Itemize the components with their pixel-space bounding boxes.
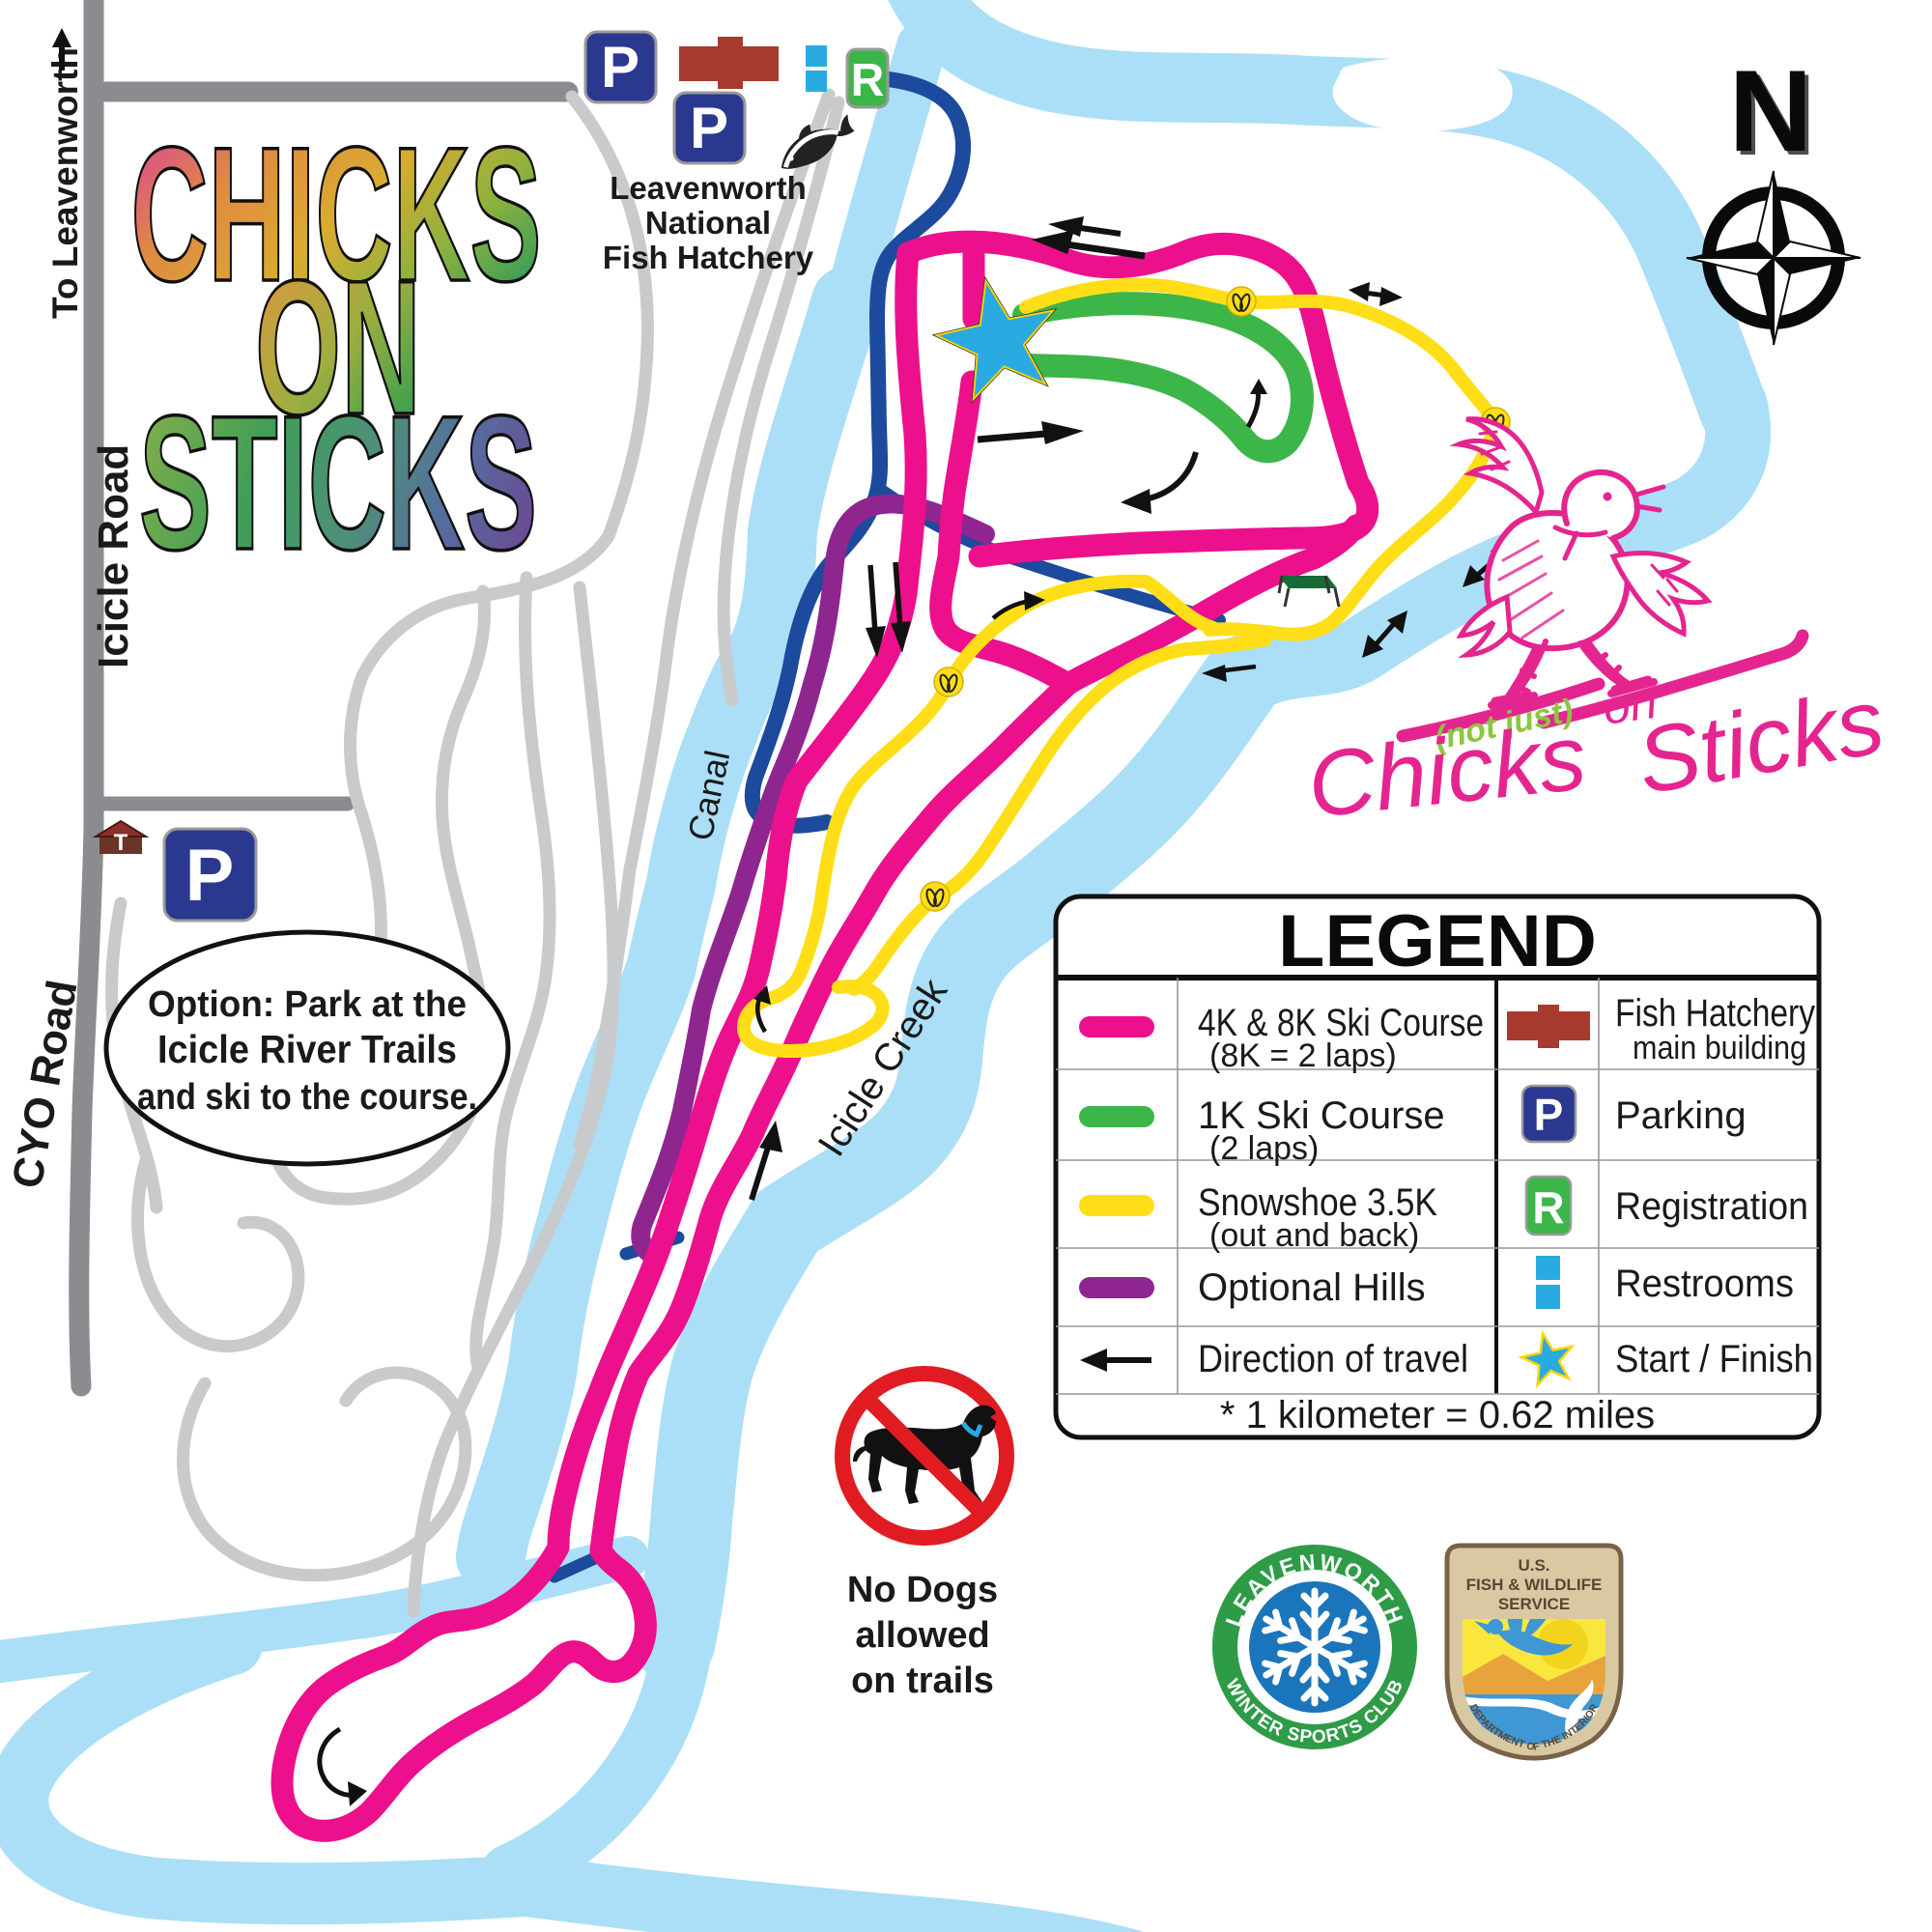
svg-text:FISH & WILDLIFE: FISH & WILDLIFE [1466,1576,1603,1594]
svg-text:Registration: Registration [1615,1185,1808,1228]
svg-text:Parking: Parking [1615,1094,1747,1137]
svg-text:LEGEND: LEGEND [1278,900,1597,982]
svg-text:Leavenworth: Leavenworth [610,170,807,206]
svg-text:Start / Finish: Start / Finish [1615,1338,1813,1380]
svg-text:on trails: on trails [851,1661,994,1701]
svg-text:Icicle Road: Icicle Road [90,444,137,668]
svg-text:To Leavenworth: To Leavenworth [45,47,85,319]
svg-text:STICKS: STICKS [139,376,537,589]
svg-text:P: P [601,35,639,99]
svg-text:Icicle River Trails: Icicle River Trails [157,1027,457,1071]
svg-text:(out and back): (out and back) [1209,1217,1419,1254]
svg-text:Restrooms: Restrooms [1615,1263,1794,1305]
svg-text:Fish Hatchery: Fish Hatchery [1615,992,1815,1035]
svg-text:(8K = 2 laps): (8K = 2 laps) [1209,1037,1397,1074]
svg-text:allowed: allowed [855,1615,989,1656]
svg-text:Option: Park at the: Option: Park at the [148,984,467,1025]
svg-text:and ski to the course.: and ski to the course. [137,1077,477,1118]
svg-text:main building: main building [1633,1030,1806,1066]
svg-text:No Dogs: No Dogs [847,1570,998,1610]
svg-text:R: R [851,55,885,106]
svg-text:SERVICE: SERVICE [1498,1595,1570,1613]
svg-text:* 1 kilometer = 0.62 miles: * 1 kilometer = 0.62 miles [1220,1394,1655,1436]
svg-text:U.S.: U.S. [1518,1556,1549,1575]
svg-text:N: N [1729,46,1813,176]
svg-text:National: National [645,205,771,241]
svg-text:P: P [1534,1090,1564,1140]
svg-text:Fish Hatchery: Fish Hatchery [603,240,814,275]
svg-text:Optional Hills: Optional Hills [1198,1266,1426,1309]
svg-text:Direction of travel: Direction of travel [1198,1338,1468,1380]
svg-text:(2 laps): (2 laps) [1209,1130,1319,1167]
svg-text:P: P [690,96,728,160]
svg-text:T: T [114,830,128,856]
svg-text:R: R [1532,1182,1564,1233]
svg-text:P: P [185,835,235,917]
